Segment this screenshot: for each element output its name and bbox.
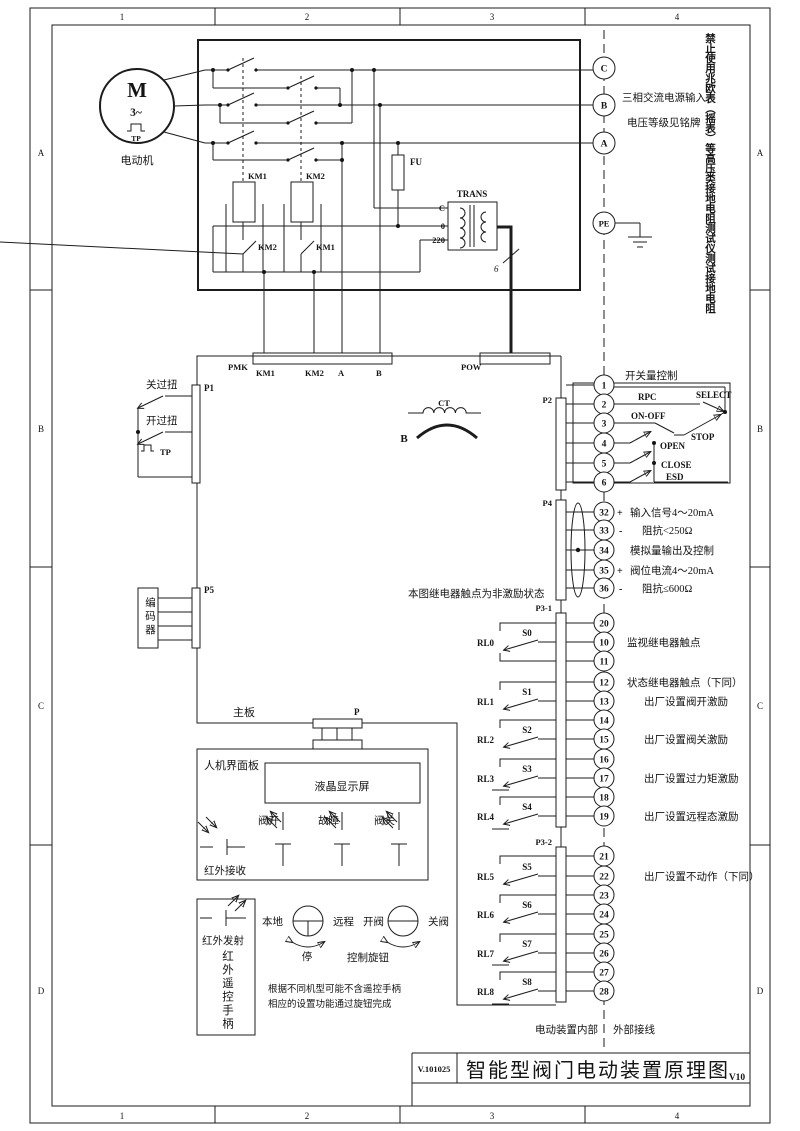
terminal-13: 13 — [594, 691, 614, 711]
svg-text:21: 21 — [599, 853, 609, 863]
svg-text:34: 34 — [599, 547, 609, 557]
svg-text:S0: S0 — [522, 628, 532, 638]
terminal-27: 27 — [594, 962, 614, 982]
external-label: 外部接线 — [613, 1023, 655, 1036]
pmk-pow-connectors: PMK KM1 KM2 A B POW — [228, 353, 550, 378]
p1-label: P1 — [204, 383, 214, 393]
supply-note-1: 三相交流电源输入 — [622, 91, 706, 104]
wire-count: 6 — [494, 264, 499, 274]
svg-text:24: 24 — [599, 911, 609, 921]
open-close-knob: 开阀 关阀 — [363, 906, 449, 947]
desc-overtorque: 出厂设置过力矩激励 — [644, 772, 739, 785]
relay-rl1: RL1S1 — [477, 682, 556, 709]
pmk-pin-b: B — [376, 368, 382, 378]
terminal-14: 14 — [594, 710, 614, 730]
schematic-page: 1 2 3 4 1 2 3 4 A B C D A B C D M 3~ TP … — [0, 0, 800, 1131]
p-label: P — [354, 707, 360, 717]
svg-text:12: 12 — [599, 679, 609, 689]
footer-labels: 电动装置内部 外部接线 — [535, 1023, 655, 1036]
tap-c: C — [439, 203, 445, 213]
p32-connector — [556, 847, 566, 1002]
ruler-col-1: 1 — [120, 12, 125, 22]
relay-note: 本图继电器触点为非激励状态 — [408, 587, 545, 600]
motor-tp: TP — [131, 134, 141, 143]
motor-label: 电动机 — [121, 153, 154, 167]
svg-text:27: 27 — [599, 969, 609, 979]
terminal-c: C — [593, 57, 615, 79]
drawing-title: 智能型阀门电动装置原理图 — [466, 1059, 730, 1082]
control-knob-label: 控制旋钮 — [347, 951, 389, 964]
mode-knob: 本地 远程 停 — [262, 906, 354, 963]
transformer-label: TRANS — [457, 189, 488, 199]
svg-text:RL6: RL6 — [477, 910, 495, 920]
led-fault: 故障 — [318, 812, 350, 866]
ir-receiver-label: 红外接收 — [204, 864, 246, 877]
ct-label: CT — [438, 398, 450, 408]
km1-aux-contact-label: KM2 — [258, 242, 277, 252]
terminal-b: B — [593, 94, 615, 116]
p-connector: P — [313, 707, 362, 749]
torque-switches: 关过扭 开过扭 TP — [136, 378, 192, 477]
terminal-5: 5 — [594, 453, 614, 473]
ir-transmitter-label: 红外发射 — [202, 934, 244, 947]
motor-m: M — [127, 78, 147, 102]
ct-phase-b: B — [400, 433, 408, 445]
led-close-label: 阀关 — [374, 814, 395, 827]
terminal-15: 15 — [594, 729, 614, 749]
valve-current-label: 阀位电流4～20mA — [630, 564, 714, 577]
sign-35-plus: + — [617, 566, 623, 577]
pow-connector — [480, 353, 550, 364]
supply-note-2: 电压等级见铭牌 — [627, 116, 701, 129]
p32-label: P3-2 — [535, 837, 552, 847]
ruler-col-4: 4 — [675, 12, 680, 22]
relay-rl5: RL5S5 — [477, 856, 556, 884]
terminal-25: 25 — [594, 924, 614, 944]
svg-text:15: 15 — [599, 736, 609, 746]
svg-text:26: 26 — [599, 950, 609, 960]
title-block: V.101025 智能型阀门电动装置原理图 V10 — [412, 1053, 750, 1106]
fuse-label: FU — [410, 157, 422, 167]
terminal-2: 2 — [594, 394, 614, 414]
main-board: 主板 P1 关过扭 开过扭 TP CT B — [136, 356, 561, 1005]
megger-warning-text: 禁止使用兆欧表（摇表）等高压类接地电阻测试仪测试接地电阻 — [702, 33, 717, 313]
esd-label: ESD — [666, 472, 684, 482]
terminal-20: 20 — [594, 613, 614, 633]
svg-text:14: 14 — [599, 717, 609, 727]
local-label: 本地 — [262, 915, 283, 928]
desc-valve-close: 出厂设置阀关激励 — [644, 733, 728, 746]
svg-text:23: 23 — [599, 892, 609, 902]
desc-valve-open: 出厂设置阀开激励 — [644, 695, 728, 708]
open-valve-label: 开阀 — [363, 915, 384, 928]
svg-text:S5: S5 — [522, 862, 532, 872]
terminal-23: 23 — [594, 885, 614, 905]
drawing-code: V.101025 — [418, 1064, 451, 1074]
tap-220: 220 — [432, 235, 445, 245]
terminal-16: 16 — [594, 749, 614, 769]
led-open-label: 阀开 — [258, 814, 279, 827]
svg-text:10: 10 — [599, 639, 609, 649]
ruler-col-2b: 2 — [305, 1111, 310, 1121]
p4-label: P4 — [543, 498, 553, 508]
terminal-17: 17 — [594, 768, 614, 788]
fuse-fu — [392, 155, 404, 190]
internal-label: 电动装置内部 — [535, 1023, 598, 1036]
terminal-28: 28 — [594, 981, 614, 1001]
svg-text:RL0: RL0 — [477, 638, 495, 648]
pmk-pin-km1: KM1 — [256, 368, 275, 378]
hmi-panel: 人机界面板 液晶显示屏 阀开 故障 阀关 红外接收 — [197, 749, 428, 880]
ruler-row-b-r: B — [757, 424, 763, 434]
svg-text:33: 33 — [599, 527, 609, 537]
current-transformer: CT B — [400, 398, 481, 445]
terminal-a: A — [593, 132, 615, 154]
svg-text:S7: S7 — [522, 939, 532, 949]
analog-input-label: 输入信号4～20mA — [630, 506, 714, 519]
svg-text:28: 28 — [599, 988, 609, 998]
svg-text:17: 17 — [599, 775, 609, 785]
svg-text:32: 32 — [599, 509, 609, 519]
svg-text:PE: PE — [599, 219, 610, 229]
svg-text:A: A — [601, 140, 608, 150]
relay-rl0: RL0S0 — [477, 623, 556, 661]
ruler-row-d-r: D — [757, 986, 764, 996]
rpc-label: RPC — [638, 392, 657, 402]
p5-connector — [192, 588, 200, 648]
analog-output-label: 模拟量输出及控制 — [630, 544, 714, 557]
terminal-12: 12 — [594, 672, 614, 692]
terminal-4: 4 — [594, 433, 614, 453]
ruler-row-c-r: C — [757, 701, 763, 711]
terminal-24: 24 — [594, 904, 614, 924]
p31-connector — [556, 613, 566, 827]
svg-text:5: 5 — [602, 460, 607, 470]
svg-text:6: 6 — [602, 479, 607, 489]
pow-label: POW — [461, 362, 482, 372]
svg-text:3: 3 — [602, 420, 607, 430]
valve-current-impedance: 阻抗≤600Ω — [642, 582, 693, 595]
terminal-36: 36 — [594, 578, 614, 598]
km2-aux-contact-label: KM1 — [316, 242, 335, 252]
hmi-label: 人机界面板 — [204, 758, 259, 772]
schematic-canvas: 1 2 3 4 1 2 3 4 A B C D A B C D M 3~ TP … — [0, 0, 800, 1131]
terminal-18: 18 — [594, 787, 614, 807]
ruler-col-1b: 1 — [120, 1111, 125, 1121]
relay-rl3: RL3S3 — [477, 759, 556, 790]
km1-coil-label: KM1 — [248, 171, 267, 181]
main-board-label: 主板 — [233, 705, 255, 719]
tp-glyph — [141, 445, 154, 451]
p2-connector — [556, 398, 566, 490]
p4-connector — [556, 500, 566, 600]
desc-monitor-relay: 监视继电器触点 — [627, 636, 701, 649]
svg-text:20: 20 — [599, 620, 609, 630]
ruler-col-4b: 4 — [675, 1111, 680, 1121]
motor-phase: 3~ — [130, 107, 142, 119]
relay-outputs: 本图继电器触点为非激励状态 P3-1 P3-2 RL0S0 RL1S1 RL2S… — [408, 587, 760, 1004]
ruler-row-d: D — [38, 986, 45, 996]
svg-text:S1: S1 — [522, 687, 532, 697]
svg-text:18: 18 — [599, 794, 609, 804]
encoder-label: 编码器 — [142, 597, 157, 638]
terminal-1: 1 — [594, 375, 614, 395]
svg-text:S8: S8 — [522, 977, 532, 987]
digital-control: P2 开关量控制 RPC SELECT ON-OFF STOP OPEN CLO… — [543, 369, 732, 492]
desc-remote-state: 出厂设置远程态激励 — [644, 810, 739, 823]
relay-rl2: RL2S2 — [477, 720, 556, 747]
led-valve-open: 阀开 — [258, 812, 291, 866]
svg-text:19: 19 — [599, 813, 609, 823]
svg-text:S6: S6 — [522, 900, 532, 910]
pmk-connector — [253, 353, 392, 364]
desc-no-action: 出厂设置不动作（下同） — [644, 870, 760, 883]
sign-32-plus: + — [617, 508, 623, 519]
svg-text:35: 35 — [599, 567, 609, 577]
svg-text:S2: S2 — [522, 725, 532, 735]
stop-mode-label: 停 — [302, 950, 313, 963]
terminal-21: 21 — [594, 846, 614, 866]
svg-text:RL2: RL2 — [477, 735, 495, 745]
tp-switch-label: TP — [160, 447, 171, 457]
km1-coil — [233, 182, 255, 222]
svg-text:RL8: RL8 — [477, 987, 495, 997]
open-overtorque-label: 开过扭 — [146, 414, 178, 427]
p31-wires — [566, 623, 594, 991]
terminal-32: 32 — [594, 502, 614, 522]
svg-text:22: 22 — [599, 873, 609, 883]
svg-text:S4: S4 — [522, 802, 532, 812]
svg-text:25: 25 — [599, 931, 609, 941]
ruler-col-3b: 3 — [490, 1111, 495, 1121]
close-overtorque-label: 关过扭 — [146, 378, 178, 391]
svg-text:1: 1 — [602, 382, 607, 392]
svg-text:B: B — [601, 102, 608, 112]
svg-text:16: 16 — [599, 756, 609, 766]
terminal-33: 33 — [594, 520, 614, 540]
svg-text:RL3: RL3 — [477, 774, 495, 784]
p31-label: P3-1 — [535, 603, 552, 613]
tap-0: 0 — [441, 221, 445, 231]
ruler-row-b: B — [38, 424, 44, 434]
terminal-6: 6 — [594, 472, 614, 492]
led-fault-label: 故障 — [318, 814, 339, 827]
ruler-row-a-r: A — [757, 148, 764, 158]
terminal-pe: PE — [593, 212, 615, 234]
svg-text:4: 4 — [602, 440, 607, 450]
relay-rl8: RL8S8 — [477, 972, 556, 1004]
svg-text:13: 13 — [599, 698, 609, 708]
svg-text:S3: S3 — [522, 764, 532, 774]
remote-handle-label: 红外遥控手柄 — [219, 950, 235, 1031]
sign-33-minus: - — [619, 526, 622, 537]
p1-connector — [192, 385, 200, 483]
ruler-row-c: C — [38, 701, 44, 711]
analog-io: P4 32 33 34 35 36 + - + - 输入信号4～20mA 阻抗<… — [543, 498, 715, 600]
open-label: OPEN — [660, 441, 686, 451]
svg-text:RL1: RL1 — [477, 697, 495, 707]
ruler-row-a: A — [38, 148, 45, 158]
km2-coil-label: KM2 — [306, 171, 325, 181]
p5-label: P5 — [204, 585, 214, 595]
pmk-pin-a: A — [338, 368, 345, 378]
sign-36-minus: - — [619, 584, 622, 595]
svg-text:11: 11 — [600, 658, 609, 668]
terminal-10: 10 — [594, 632, 614, 652]
terminal-35: 35 — [594, 560, 614, 580]
select-label: SELECT — [696, 390, 732, 400]
ruler-col-3: 3 — [490, 12, 495, 22]
svg-text:RL4: RL4 — [477, 812, 495, 822]
lcd-label: 液晶显示屏 — [315, 779, 370, 793]
svg-text:36: 36 — [599, 585, 609, 595]
remote-label: 远程 — [333, 916, 354, 928]
terminal-34: 34 — [594, 540, 614, 560]
terminal-26: 26 — [594, 943, 614, 963]
relay-rl6: RL6S6 — [477, 895, 556, 922]
pmk-label: PMK — [228, 362, 248, 372]
analog-input-impedance: 阻抗<250Ω — [642, 524, 693, 537]
p2-label: P2 — [543, 395, 552, 405]
stop-label: STOP — [691, 432, 715, 442]
digital-control-title: 开关量控制 — [625, 369, 678, 382]
power-section: M 3~ TP 电动机 KM1 KM2 KM2 KM1 — [0, 40, 706, 353]
desc-status-relay: 状态继电器触点（下同） — [627, 676, 743, 689]
relay-rl7: RL7S7 — [477, 934, 556, 965]
drawing-version: V10 — [729, 1073, 746, 1083]
close-label: CLOSE — [661, 460, 692, 470]
handle-note-2: 相应的设置功能通过旋钮完成 — [268, 998, 392, 1010]
svg-text:C: C — [601, 65, 608, 75]
ground-symbol — [615, 223, 652, 247]
handle-note-1: 根据不同机型可能不含遥控手柄 — [268, 983, 401, 995]
svg-text:2: 2 — [602, 401, 607, 411]
close-valve-label: 关阀 — [428, 915, 449, 928]
relay-rl4: RL4S4 — [477, 797, 556, 829]
pmk-pin-km2: KM2 — [305, 368, 324, 378]
ruler-col-2: 2 — [305, 12, 310, 22]
terminal-11: 11 — [594, 651, 614, 671]
motor-tp-glyph — [127, 124, 145, 131]
transformer — [448, 202, 497, 250]
km2-coil — [291, 182, 313, 222]
terminal-19: 19 — [594, 806, 614, 826]
led-valve-close: 阀关 — [374, 812, 407, 866]
onoff-label: ON-OFF — [631, 411, 666, 421]
svg-text:RL5: RL5 — [477, 872, 495, 882]
ir-receiver: 红外接收 — [198, 817, 246, 877]
ir-transmitter — [200, 896, 246, 926]
svg-text:RL7: RL7 — [477, 949, 495, 959]
terminal-22: 22 — [594, 866, 614, 886]
terminal-3: 3 — [594, 413, 614, 433]
